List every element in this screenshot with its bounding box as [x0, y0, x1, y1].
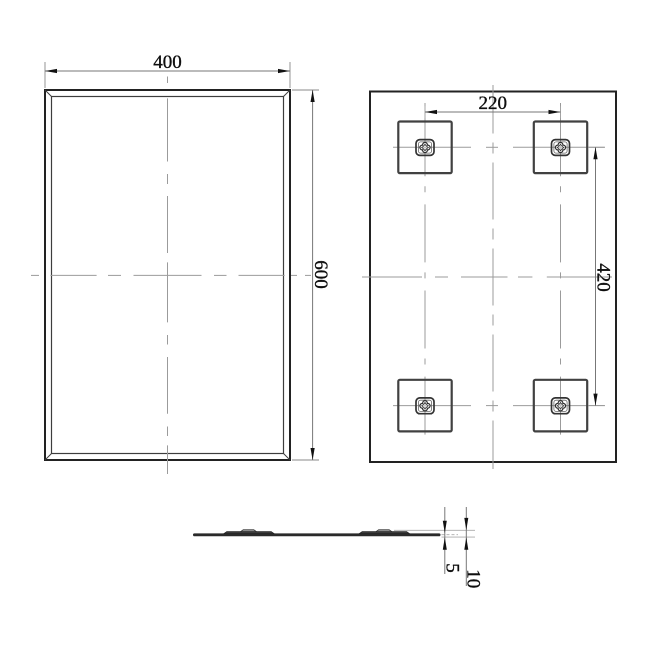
- svg-text:400: 400: [153, 52, 182, 73]
- svg-text:10: 10: [463, 569, 484, 588]
- svg-text:600: 600: [310, 260, 331, 289]
- svg-text:5: 5: [442, 563, 463, 573]
- svg-text:420: 420: [593, 263, 614, 292]
- svg-text:220: 220: [478, 93, 507, 114]
